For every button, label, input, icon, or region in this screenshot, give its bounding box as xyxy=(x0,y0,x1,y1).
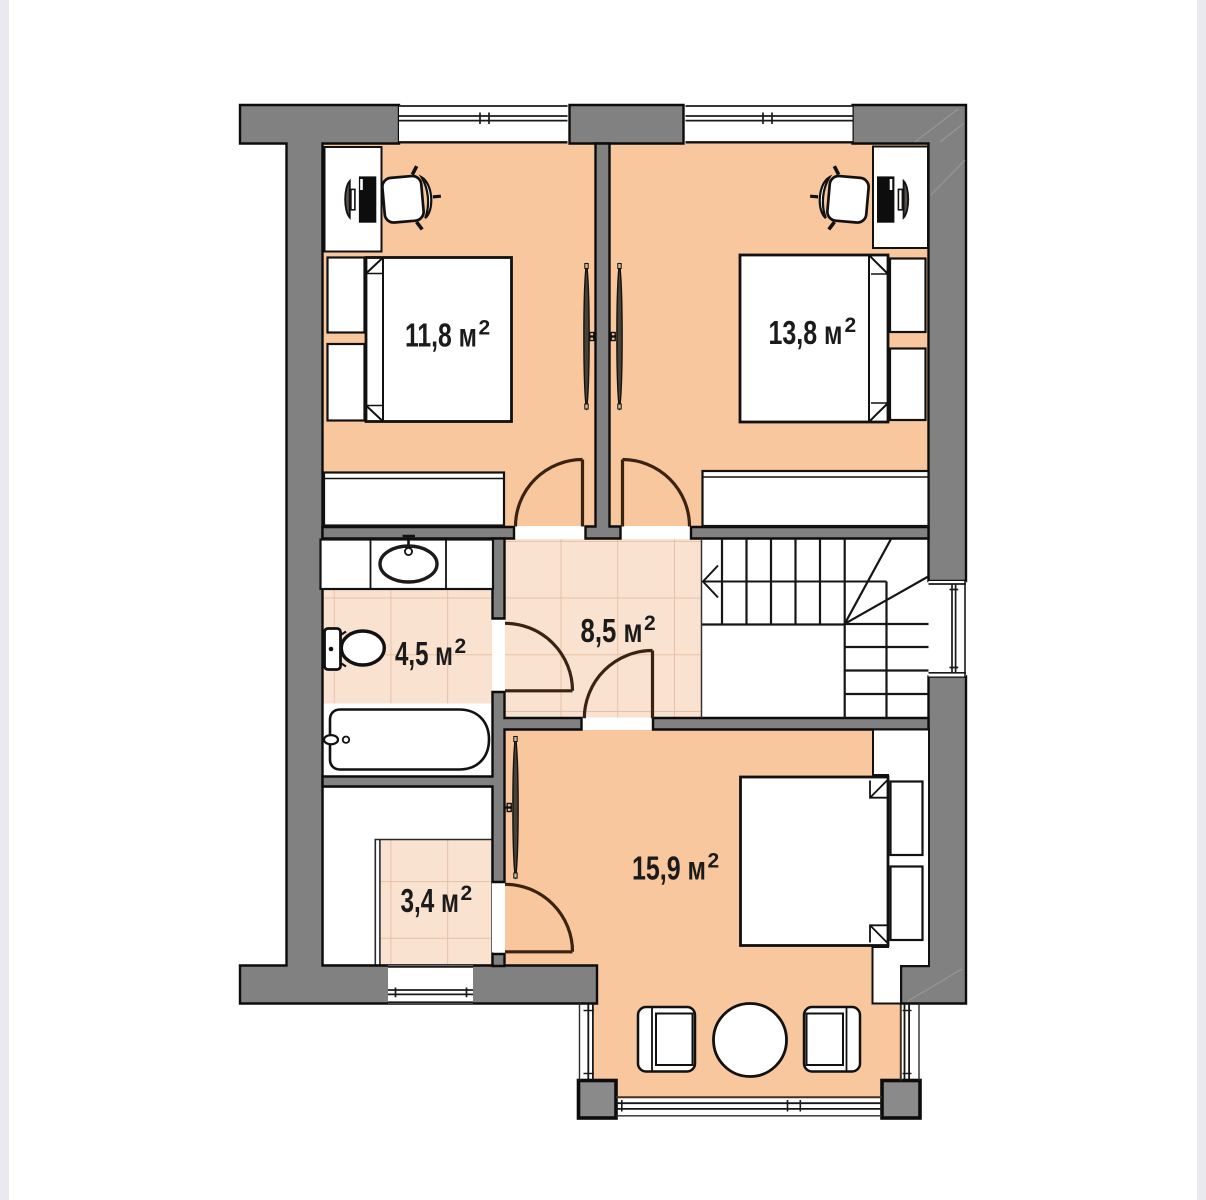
svg-text:13,8 м: 13,8 м xyxy=(769,314,843,351)
svg-text:2: 2 xyxy=(461,882,473,905)
svg-text:11,8 м: 11,8 м xyxy=(405,316,477,353)
svg-text:15,9 м: 15,9 м xyxy=(632,849,706,886)
svg-text:2: 2 xyxy=(455,635,467,658)
svg-text:3,4 м: 3,4 м xyxy=(401,882,460,919)
svg-text:2: 2 xyxy=(845,314,857,337)
svg-text:2: 2 xyxy=(644,612,656,635)
svg-text:2: 2 xyxy=(479,317,491,340)
svg-text:8,5 м: 8,5 м xyxy=(581,612,643,649)
svg-text:2: 2 xyxy=(708,849,720,872)
svg-text:4,5 м: 4,5 м xyxy=(395,635,453,672)
